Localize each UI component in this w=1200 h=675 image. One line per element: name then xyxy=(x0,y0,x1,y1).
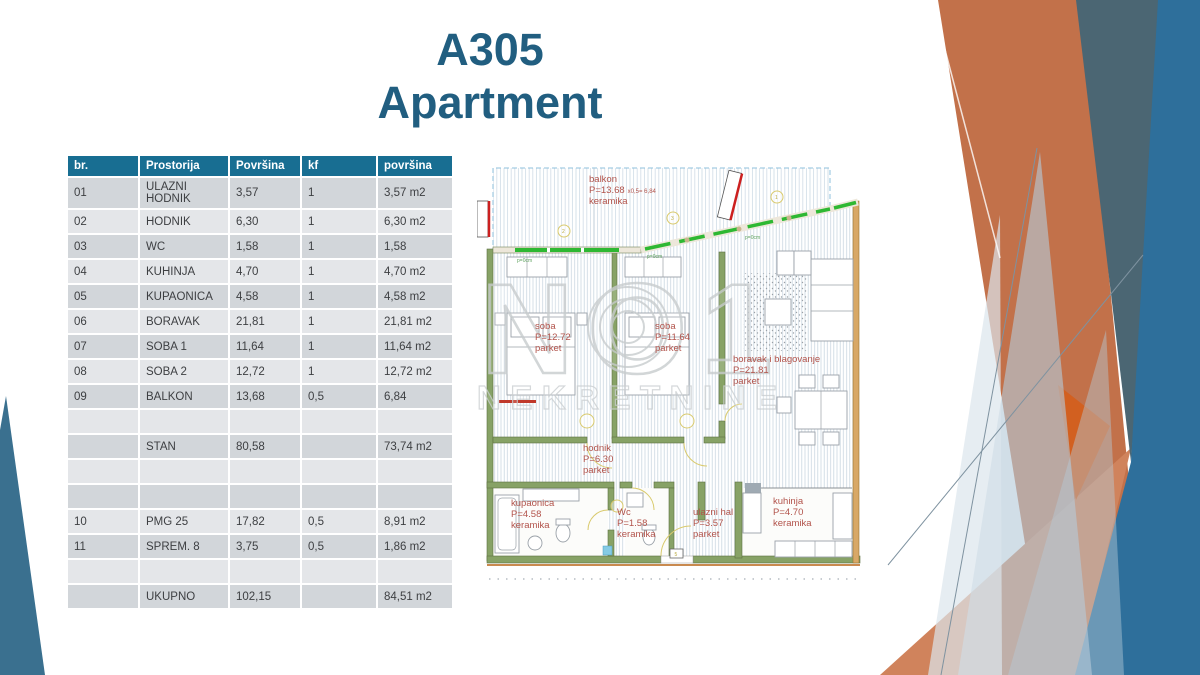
marker-number-3: 3 xyxy=(671,216,674,222)
table-cell: 01 xyxy=(68,178,138,208)
table-row: 03WC1,5811,58 xyxy=(68,235,452,258)
entrance-marker-number: 5 xyxy=(675,552,678,558)
area-table-body: 01ULAZNI HODNIK3,5713,57 m202HODNIK6,301… xyxy=(68,178,452,608)
table-cell xyxy=(230,410,300,433)
wc-blue-square xyxy=(603,546,612,555)
table-cell: 6,84 xyxy=(378,385,452,408)
table-cell: 1,58 xyxy=(378,235,452,258)
wall-hodnik-3 xyxy=(704,437,725,443)
col-header-br: br. xyxy=(68,156,138,176)
table-cell: 0,5 xyxy=(302,510,376,533)
table-cell: UKUPNO xyxy=(140,585,228,608)
table-cell: 102,15 xyxy=(230,585,300,608)
table-cell xyxy=(68,460,138,483)
col-header-prostorija: Prostorija xyxy=(140,156,228,176)
apartment-number: A305 xyxy=(280,24,700,77)
table-cell: 1,58 xyxy=(230,235,300,258)
table-cell: SPREM. 8 xyxy=(140,535,228,558)
table-cell: 11 xyxy=(68,535,138,558)
table-row: 01ULAZNI HODNIK3,5713,57 m2 xyxy=(68,178,452,208)
table-cell: HODNIK xyxy=(140,210,228,233)
table-cell: BALKON xyxy=(140,385,228,408)
table-row: 06BORAVAK21,81121,81 m2 xyxy=(68,310,452,333)
table-cell: SOBA 2 xyxy=(140,360,228,383)
table-cell xyxy=(68,560,138,583)
table-row xyxy=(68,410,452,433)
table-cell xyxy=(68,410,138,433)
table-row: 04KUHINJA4,7014,70 m2 xyxy=(68,260,452,283)
dining-chair-4 xyxy=(823,432,839,445)
table-cell xyxy=(378,485,452,508)
table-cell: 21,81 xyxy=(230,310,300,333)
left-red-element-box xyxy=(477,201,488,237)
glazing-post-2 xyxy=(737,227,742,232)
table-cell: 07 xyxy=(68,335,138,358)
table-row xyxy=(68,560,452,583)
table-cell: 3,57 m2 xyxy=(378,178,452,208)
marker-number-1: 1 xyxy=(775,195,778,201)
table-cell xyxy=(68,435,138,458)
table-cell: 12,72 xyxy=(230,360,300,383)
table-cell: 4,58 xyxy=(230,285,300,308)
table-cell: 21,81 m2 xyxy=(378,310,452,333)
area-table: br. Prostorija Površina kf površina 01UL… xyxy=(66,154,454,610)
table-row: STAN80,5873,74 m2 xyxy=(68,435,452,458)
table-cell: 11,64 m2 xyxy=(378,335,452,358)
table-cell: 1 xyxy=(302,260,376,283)
table-cell: 17,82 xyxy=(230,510,300,533)
table-cell xyxy=(378,410,452,433)
col-header-povrsina2: površina xyxy=(378,156,452,176)
table-cell: 1 xyxy=(302,178,376,208)
table-cell: 73,74 m2 xyxy=(378,435,452,458)
wc-sink xyxy=(627,493,643,507)
table-cell: 06 xyxy=(68,310,138,333)
bath-toilet xyxy=(556,524,570,542)
floor-plan: 5 2 3 1 p=0cm p=0cm p=0cm NO1 xyxy=(477,161,867,591)
glazing-gap-1 xyxy=(547,248,550,253)
table-cell: 1,86 m2 xyxy=(378,535,452,558)
bath-toilet-tank xyxy=(556,519,570,525)
presentation-slide: A305 Apartment br. Prostorija Površina k… xyxy=(0,0,1200,675)
wall-hodnik-1 xyxy=(493,437,587,443)
table-cell xyxy=(68,485,138,508)
table-cell xyxy=(140,560,228,583)
marker-circle-b xyxy=(680,414,694,428)
table-cell: 8,91 m2 xyxy=(378,510,452,533)
table-cell: 0,5 xyxy=(302,385,376,408)
dining-chair-3 xyxy=(799,432,815,445)
table-cell: 09 xyxy=(68,385,138,408)
glazing-post-3 xyxy=(787,216,792,221)
bottom-wall-left xyxy=(487,556,661,563)
table-cell: 1 xyxy=(302,235,376,258)
table-cell xyxy=(230,485,300,508)
table-cell: 0,5 xyxy=(302,535,376,558)
table-cell: 6,30 m2 xyxy=(378,210,452,233)
wall-wc-top-a xyxy=(620,482,632,488)
table-cell xyxy=(230,560,300,583)
apartment-label: Apartment xyxy=(280,77,700,130)
wall-boravak-lower xyxy=(719,421,725,439)
wall-wc-right xyxy=(669,488,674,556)
col-header-povrsina: Površina xyxy=(230,156,300,176)
table-cell: KUHINJA xyxy=(140,260,228,283)
table-cell: PMG 25 xyxy=(140,510,228,533)
right-facet-graphic xyxy=(880,0,1200,675)
table-cell: 12,72 m2 xyxy=(378,360,452,383)
boravak-chaise-2 xyxy=(794,251,811,275)
table-cell xyxy=(302,460,376,483)
table-cell: 1 xyxy=(302,310,376,333)
table-row: UKUPNO102,1584,51 m2 xyxy=(68,585,452,608)
table-cell: 10 xyxy=(68,510,138,533)
wall-wc-top-b xyxy=(654,482,674,488)
annotation-p0cm-3: p=0cm xyxy=(745,235,760,241)
wall-kupaonica-top xyxy=(487,482,614,488)
wall-hodnik-2 xyxy=(612,437,684,443)
table-cell: 11,64 xyxy=(230,335,300,358)
kitchen-unit-right xyxy=(833,493,852,539)
table-cell xyxy=(68,585,138,608)
table-cell: 3,57 xyxy=(230,178,300,208)
table-cell: 4,70 m2 xyxy=(378,260,452,283)
table-cell xyxy=(140,485,228,508)
table-cell: 03 xyxy=(68,235,138,258)
dining-chair-1 xyxy=(799,375,815,388)
glazing-post-1 xyxy=(685,238,690,243)
glazing-gap-2 xyxy=(581,248,584,253)
table-row xyxy=(68,460,452,483)
table-cell: 1 xyxy=(302,285,376,308)
left-teal-wedge xyxy=(0,396,45,675)
decor-pale-wedge xyxy=(928,215,1002,675)
table-row: 08SOBA 212,72112,72 m2 xyxy=(68,360,452,383)
table-cell xyxy=(140,460,228,483)
table-row: 02HODNIK6,3016,30 m2 xyxy=(68,210,452,233)
table-cell: 04 xyxy=(68,260,138,283)
table-cell xyxy=(302,560,376,583)
table-row: 11SPREM. 83,750,51,86 m2 xyxy=(68,535,452,558)
table-cell xyxy=(378,460,452,483)
boravak-sofa xyxy=(811,259,853,341)
table-cell: 84,51 m2 xyxy=(378,585,452,608)
marker-circle-a xyxy=(580,414,594,428)
table-cell: KUPAONICA xyxy=(140,285,228,308)
table-cell: 08 xyxy=(68,360,138,383)
table-cell: 3,75 xyxy=(230,535,300,558)
wall-hal-right xyxy=(735,482,742,558)
kitchen-counter xyxy=(775,541,852,557)
col-header-kf: kf xyxy=(302,156,376,176)
watermark: NO1 NEKRETNINE xyxy=(477,258,787,416)
table-cell: BORAVAK xyxy=(140,310,228,333)
table-cell xyxy=(302,435,376,458)
table-cell: STAN xyxy=(140,435,228,458)
table-cell: 02 xyxy=(68,210,138,233)
slide-title: A305 Apartment xyxy=(280,24,700,129)
table-cell xyxy=(230,460,300,483)
table-cell: 1 xyxy=(302,210,376,233)
table-row: 10PMG 2517,820,58,91 m2 xyxy=(68,510,452,533)
table-cell: 6,30 xyxy=(230,210,300,233)
marker-number-2: 2 xyxy=(562,229,565,235)
right-wall xyxy=(853,201,859,563)
dining-chair-2 xyxy=(823,375,839,388)
table-cell: ULAZNI HODNIK xyxy=(140,178,228,208)
table-row: 05KUPAONICA4,5814,58 m2 xyxy=(68,285,452,308)
table-row xyxy=(68,485,452,508)
table-cell xyxy=(378,560,452,583)
area-table-header: br. Prostorija Površina kf površina xyxy=(68,156,452,176)
table-cell: 1 xyxy=(302,360,376,383)
glazing-left-green xyxy=(515,248,619,252)
table-cell xyxy=(302,485,376,508)
kitchen-unit-left xyxy=(743,493,761,533)
table-cell: 4,70 xyxy=(230,260,300,283)
table-cell xyxy=(302,410,376,433)
table-row: 07SOBA 111,64111,64 m2 xyxy=(68,335,452,358)
table-cell: 1 xyxy=(302,335,376,358)
table-cell: SOBA 1 xyxy=(140,335,228,358)
table-cell: 4,58 m2 xyxy=(378,285,452,308)
table-row: 09BALKON13,680,56,84 xyxy=(68,385,452,408)
table-cell xyxy=(302,585,376,608)
table-cell: WC xyxy=(140,235,228,258)
table-cell: 80,58 xyxy=(230,435,300,458)
table-cell: 13,68 xyxy=(230,385,300,408)
bath-sink xyxy=(528,536,542,550)
table-cell xyxy=(140,410,228,433)
table-cell: 05 xyxy=(68,285,138,308)
